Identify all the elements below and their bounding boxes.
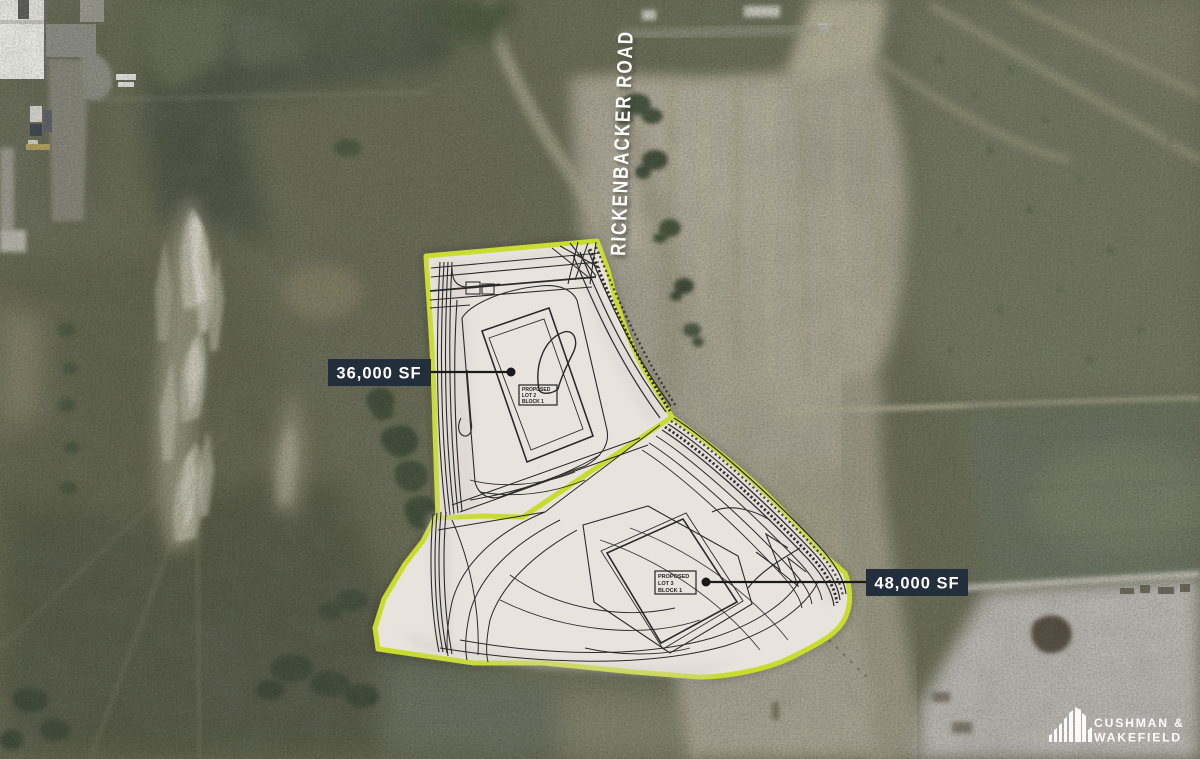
svg-text:BLOCK 1: BLOCK 1 — [522, 399, 544, 405]
svg-text:36,000 SF: 36,000 SF — [336, 365, 421, 383]
svg-text:LOT 3: LOT 3 — [658, 581, 674, 587]
svg-text:WAKEFIELD: WAKEFIELD — [1094, 731, 1182, 745]
svg-text:PROPOSED: PROPOSED — [658, 574, 689, 580]
svg-text:BLOCK 1: BLOCK 1 — [658, 588, 682, 594]
svg-text:CUSHMAN &: CUSHMAN & — [1094, 716, 1185, 730]
svg-text:48,000 SF: 48,000 SF — [874, 575, 959, 593]
